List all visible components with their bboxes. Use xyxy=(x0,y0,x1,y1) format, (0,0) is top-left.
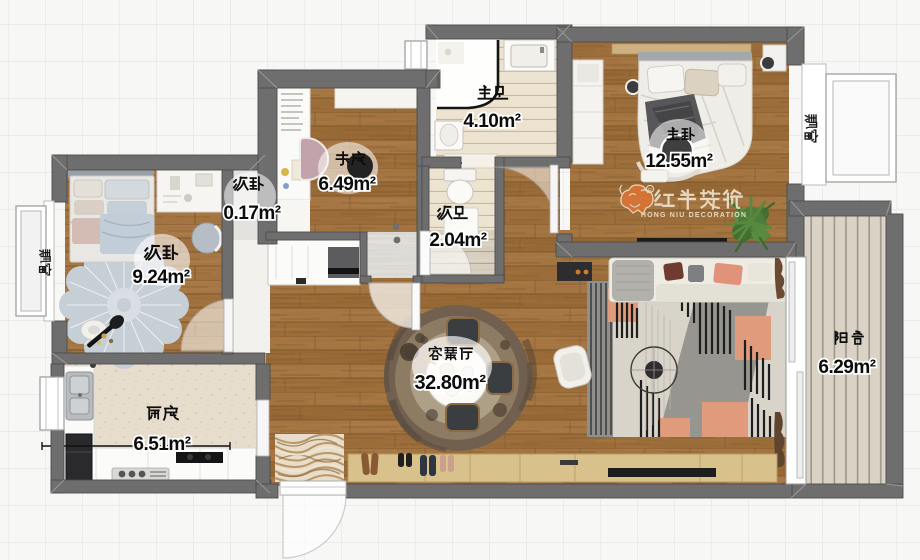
svg-text:0.17m²: 0.17m² xyxy=(223,203,280,224)
svg-text:6.29m²: 6.29m² xyxy=(818,357,875,378)
svg-text:6.51m²: 6.51m² xyxy=(133,434,190,455)
svg-text:32.80m²: 32.80m² xyxy=(415,372,487,394)
svg-text:R: R xyxy=(648,188,652,194)
svg-text:9.24m²: 9.24m² xyxy=(132,267,189,288)
svg-text:6.49m²: 6.49m² xyxy=(318,174,375,195)
svg-text:4.10m²: 4.10m² xyxy=(463,111,520,132)
svg-text:HONG NIU DECORATION: HONG NIU DECORATION xyxy=(641,212,747,219)
svg-text:12.55m²: 12.55m² xyxy=(645,151,712,172)
svg-text:2.04m²: 2.04m² xyxy=(429,230,486,251)
